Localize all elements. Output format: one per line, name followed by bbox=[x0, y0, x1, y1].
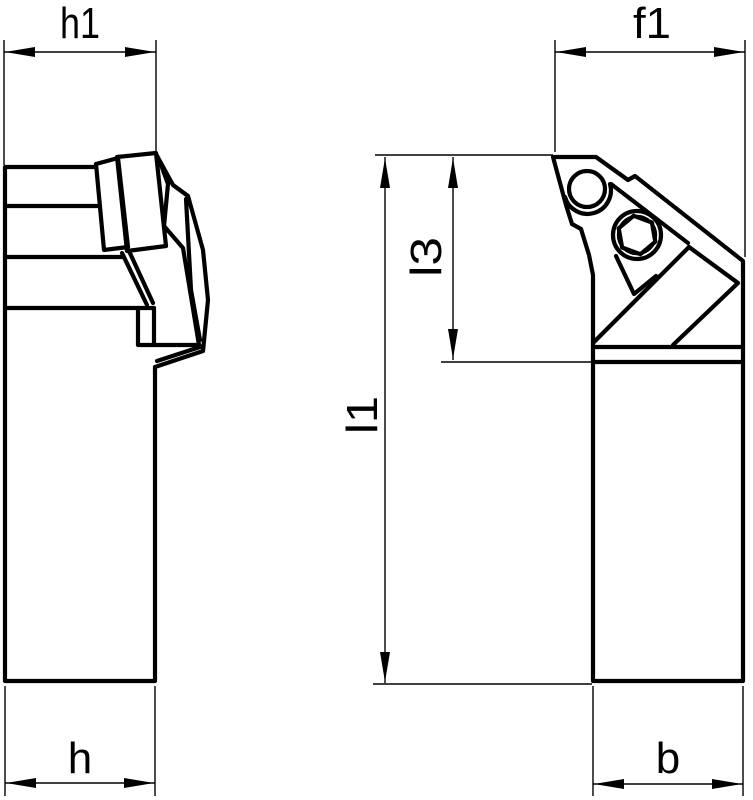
f1-label: f1 bbox=[633, 0, 671, 48]
l3-label: l3 bbox=[402, 237, 451, 277]
tool-holder-drawing: h1 f1 l1 l3 bbox=[0, 0, 753, 800]
technical-drawing-page: h1 f1 l1 l3 bbox=[0, 0, 753, 800]
b-label: b bbox=[656, 734, 680, 783]
h-label: h bbox=[68, 734, 92, 783]
h1-label: h1 bbox=[60, 0, 100, 48]
l1-label: l1 bbox=[338, 396, 387, 434]
